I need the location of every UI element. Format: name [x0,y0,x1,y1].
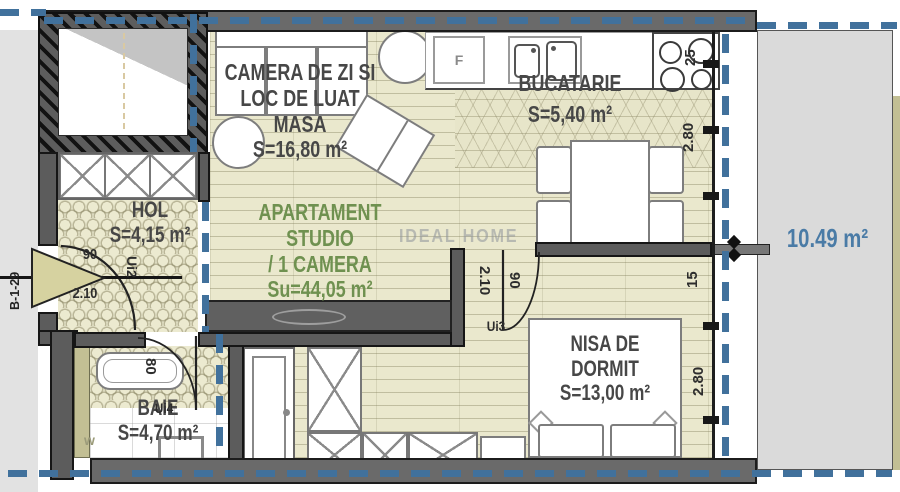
burner [659,41,682,64]
hall-label: HOL S=4,15 m² [95,198,204,247]
floor-plan: F [0,0,900,492]
window-tick [703,322,719,330]
studio-area: Su=44,05 m² [230,277,409,303]
round-table [378,30,432,84]
dining-chair [648,200,684,248]
shaft-inner [58,28,188,136]
living-line1: CAMERA DE ZI SI [218,60,382,86]
sleeping-area: S=13,00 m² [550,381,661,406]
wall-interior-vertical [450,248,465,347]
pillow [538,424,604,458]
dining-table [570,140,650,250]
dim-entrance-height: 2.10 [62,285,108,302]
dining-chair [536,146,572,194]
terrace-label: 10.49 m² [775,224,880,253]
door-panel-inner [252,356,286,468]
window-tick [703,192,719,200]
wall-sleeping [535,242,712,257]
wall-left-upper [38,152,58,246]
faucet-dot [531,48,536,53]
washer-label: w [84,432,95,448]
wardrobe [307,347,362,432]
window-line-right [712,32,715,458]
bath-area: S=4,70 m² [103,421,212,446]
closet-cell [105,154,150,198]
kitchen-name: BUCATARIE [492,68,648,99]
fridge-label: F [435,52,483,68]
kitchen-area: S=5,40 m² [492,99,648,130]
dim-interior-width: 90 [506,272,523,312]
boundary-bath [216,334,223,458]
glazing-top [44,17,750,24]
hall-name: HOL [95,198,204,223]
window-tick [703,126,719,134]
studio-label: APARTAMENT STUDIO / 1 CAMERA Su=44,05 m² [230,200,409,303]
burner [691,69,712,90]
window-tick [703,60,719,68]
studio-line1: APARTAMENT STUDIO [230,200,409,252]
dim-interior-height: 2.10 [476,266,493,318]
closet-cell [60,154,105,198]
glazing-terrace-top [757,22,897,29]
dim-stub [712,244,770,255]
dim-wall-offset: 15 [684,258,701,288]
living-line2: LOC DE LUAT MASA [218,86,382,138]
glazing-right [722,34,729,458]
entrance-door-label: Ui2 [124,256,140,300]
window-tick [703,416,719,424]
closet-cell [150,154,196,198]
dining-chair [648,146,684,194]
island-sink-oval [272,309,346,325]
hall-area: S=4,15 m² [95,223,204,248]
fridge: F [433,36,485,84]
kitchen-label: BUCATARIE S=5,40 m² [492,68,648,130]
dim-sleeping-width: 2.80 [690,344,707,396]
studio-line2: / 1 CAMERA [230,252,409,278]
glazing-entry-left [0,9,46,16]
closet-top [58,152,198,200]
unit-code: B-1-29 [8,246,22,310]
sleeping-line1: NISA DE [550,332,661,357]
sleeping-line2: DORMIT [550,357,661,382]
living-room-label: CAMERA DE ZI SI LOC DE LUAT MASA S=16,80… [218,60,382,163]
wall-living-bottom [198,332,464,347]
bath-door-label: Ui4 [145,400,182,416]
wall-bath-outer [50,330,74,480]
door-knob [283,409,290,416]
glazing-bottom [8,470,892,477]
kitchen-island [205,300,452,332]
interior-door-label: Ui3 [476,318,517,334]
dim-counter-depth: 25 [682,26,699,66]
wall-shaft-side [198,152,210,202]
dim-bath-door: 80 [142,358,159,394]
burner [660,67,685,92]
shaft-center-line [123,33,125,129]
sleeping-label: NISA DE DORMIT S=13,00 m² [550,332,661,406]
dim-entrance-width: 90 [71,246,108,263]
outside-right-strip [893,96,900,470]
pillow [610,424,676,458]
dining-chair [536,200,572,248]
faucet-dot [551,46,556,51]
watermark: IDEAL HOME [399,226,525,247]
dim-kitchen-width: 2.80 [680,100,697,152]
living-area: S=16,80 m² [218,137,382,163]
glazing-shaft [190,14,197,152]
